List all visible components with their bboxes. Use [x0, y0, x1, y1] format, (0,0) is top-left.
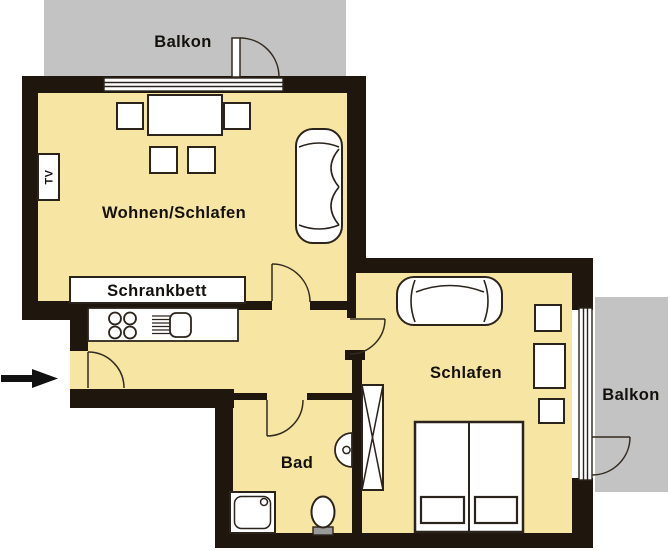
double-bed [415, 422, 523, 532]
stove-burner [124, 327, 136, 339]
living-door-gap [272, 301, 310, 310]
wall-living-bottom-b [310, 301, 347, 310]
wall-living-right [347, 76, 366, 260]
wall-left-upper [22, 76, 38, 320]
window-bedroom-right [579, 308, 592, 480]
floor-plan: Balkon Wohnen/Schlafen Schrankbett Schla… [0, 0, 670, 551]
tv-label: TV [44, 169, 56, 184]
bedroom-cabinet [539, 399, 564, 423]
wall-bottom [215, 533, 593, 548]
bedroom-cabinet [534, 344, 565, 388]
bathroom-label: Bad [281, 454, 313, 472]
kitchen-counter [88, 308, 238, 341]
pillow [475, 497, 517, 523]
kitchen-sink [170, 313, 191, 337]
chair [188, 147, 215, 173]
chair [224, 103, 250, 129]
wall-bath-top-b [307, 393, 352, 400]
balcony-right-label: Balkon [602, 386, 659, 404]
wardrobe [362, 385, 383, 490]
balcony-top-label: Balkon [154, 33, 211, 51]
bath-door-gap [267, 393, 307, 400]
shower-drain [261, 499, 268, 506]
bedroom-cabinet [535, 305, 561, 331]
toilet [312, 497, 335, 536]
stove-burner [109, 313, 121, 325]
wall-bedroom-top [347, 258, 593, 273]
stove-burner [124, 313, 136, 325]
wall-vestibule-bedroom [347, 273, 356, 318]
dining-table [148, 95, 222, 135]
chair [150, 147, 177, 173]
window-living-top [104, 78, 283, 91]
entry-door-gap [70, 351, 88, 389]
chair [117, 103, 143, 129]
wall-bath-bedroom [352, 358, 362, 533]
sofa-bedroom [397, 277, 502, 325]
bath-sink-drain [343, 446, 350, 453]
bedroom-label: Schlafen [430, 364, 502, 382]
wall-bath-top-a [233, 393, 267, 400]
wall-hall-bottom [70, 389, 234, 408]
wall-right-lower [572, 478, 593, 548]
pillow [421, 497, 464, 523]
living-room-label: Wohnen/Schlafen [102, 204, 246, 222]
sofa-living [296, 129, 342, 243]
toilet-bowl [312, 497, 335, 528]
shower [230, 492, 275, 533]
stove-burner [109, 327, 121, 339]
wall-hall-left [70, 303, 88, 351]
wall-bed-label: Schrankbett [107, 282, 207, 300]
floor-plan-canvas: Balkon Wohnen/Schlafen Schrankbett Schla… [0, 0, 670, 551]
